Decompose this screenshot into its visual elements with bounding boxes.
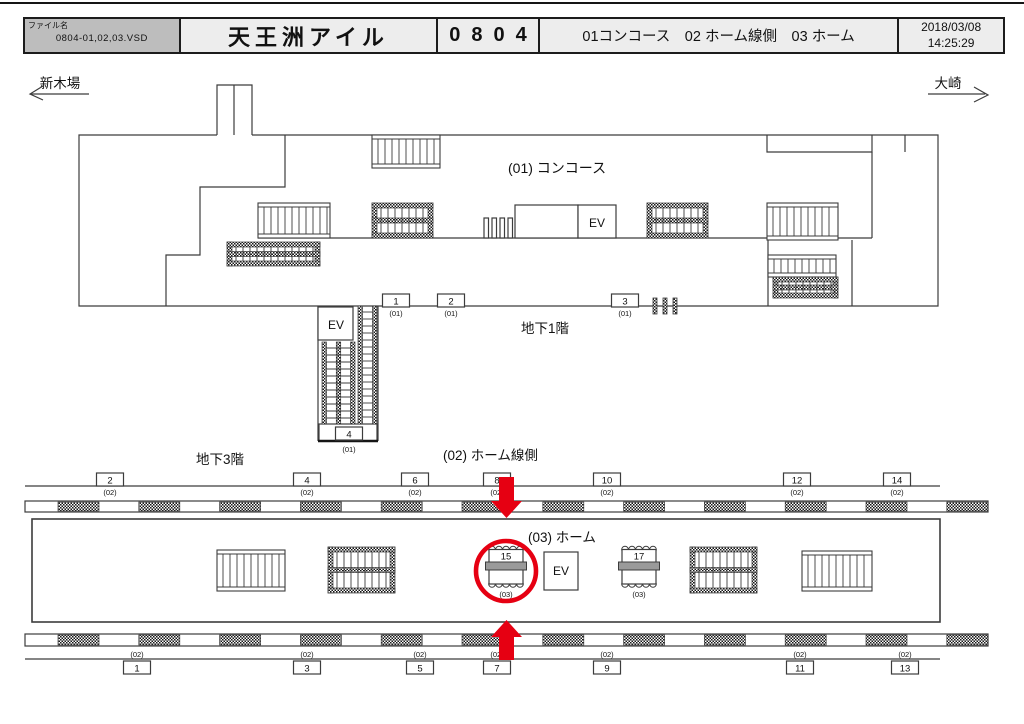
svg-text:(01): (01) [342,445,356,454]
svg-text:13: 13 [900,664,911,675]
svg-text:2: 2 [107,476,112,487]
direction-left: 新木場 [30,76,89,100]
svg-text:(02): (02) [408,488,422,497]
svg-text:2: 2 [448,297,453,308]
escalator-icon [227,242,320,266]
svg-text:4: 4 [346,430,351,441]
position-3: 3(02) [294,650,321,675]
stairs-icon [767,203,838,240]
escalator-icon [647,203,708,238]
position-2: 2(02) [97,473,124,497]
position-3: 3(01) [612,294,639,318]
direction-right-label: 大崎 [935,76,962,91]
svg-text:(02): (02) [413,650,427,659]
b3-label: 地下3階 [196,452,244,467]
svg-text:(02): (02) [790,488,804,497]
svg-text:(02): (02) [600,488,614,497]
position-1: 1(02) [124,650,151,675]
svg-text:15: 15 [501,552,512,563]
station-diagram-page: ファイル名 0804-01,02,03.VSD 天王洲アイル 0804 01コン… [0,0,1024,724]
position-4: 4(01) [336,427,363,454]
stairs-icon [258,203,330,238]
svg-text:(02): (02) [890,488,904,497]
lineside-label: (02) ホーム線側 [443,448,538,463]
pillar-position-15: 15(03) [486,546,527,599]
position-4: 4(02) [294,473,321,497]
svg-text:(02): (02) [103,488,117,497]
pillar-position-17: 17(03) [619,546,660,599]
svg-text:8: 8 [494,476,499,487]
b1-label: 地下1階 [521,321,569,336]
elevator-label: EV [589,216,605,230]
position-2: 2(01) [438,294,465,318]
svg-text:10: 10 [602,476,613,487]
escalator-icon [690,547,757,593]
ticket-gates-east [653,298,677,314]
svg-text:4: 4 [304,476,309,487]
position-11: 11(02) [787,650,814,675]
elevator-label: EV [328,318,344,332]
svg-text:11: 11 [795,664,805,675]
svg-text:(01): (01) [444,309,458,318]
position-9: 9(02) [594,650,621,675]
stairs-and-escalators [217,135,872,593]
direction-right: 大崎 [928,76,988,102]
svg-text:3: 3 [622,297,627,308]
position-5: 5(02) [407,650,434,675]
svg-text:9: 9 [604,664,609,675]
ticket-gates [484,218,513,238]
svg-text:(02): (02) [130,650,144,659]
svg-text:(02): (02) [793,650,807,659]
elevator-label: EV [553,564,569,578]
concourse-label: (01) コンコース [508,160,606,176]
svg-text:(02): (02) [600,650,614,659]
svg-text:5: 5 [417,664,422,675]
svg-text:3: 3 [304,664,309,675]
stairs-icon [768,255,836,277]
direction-left-label: 新木場 [40,76,81,91]
svg-text:12: 12 [792,476,803,487]
stairs-icon [217,550,285,591]
svg-text:(02): (02) [300,488,314,497]
svg-text:(03): (03) [499,590,513,599]
svg-text:7: 7 [494,664,499,675]
position-1: 1(01) [383,294,410,318]
svg-text:1: 1 [134,664,139,675]
svg-text:(01): (01) [618,309,632,318]
position-13: 13(02) [892,650,919,675]
escalator-icon [322,342,355,424]
svg-text:(03): (03) [632,590,646,599]
escalator-icon [773,277,838,298]
position-10: 10(02) [594,473,621,497]
position-12: 12(02) [784,473,811,497]
stairs-icon [802,551,872,591]
svg-text:(02): (02) [300,650,314,659]
svg-text:(02): (02) [898,650,912,659]
svg-text:6: 6 [412,476,417,487]
escalator-icon [328,547,395,593]
position-14: 14(02) [884,473,911,497]
station-map: 新木場 大崎 [0,0,1024,724]
home-label: (03) ホーム [528,530,596,545]
station-office-box [515,205,578,238]
escalator-icon [372,203,433,238]
stairs-icon [372,135,440,168]
svg-text:(01): (01) [389,309,403,318]
position-6: 6(02) [402,473,429,497]
escalator-icon [358,306,377,424]
svg-text:14: 14 [892,476,903,487]
svg-text:1: 1 [393,297,398,308]
svg-text:17: 17 [634,552,645,563]
